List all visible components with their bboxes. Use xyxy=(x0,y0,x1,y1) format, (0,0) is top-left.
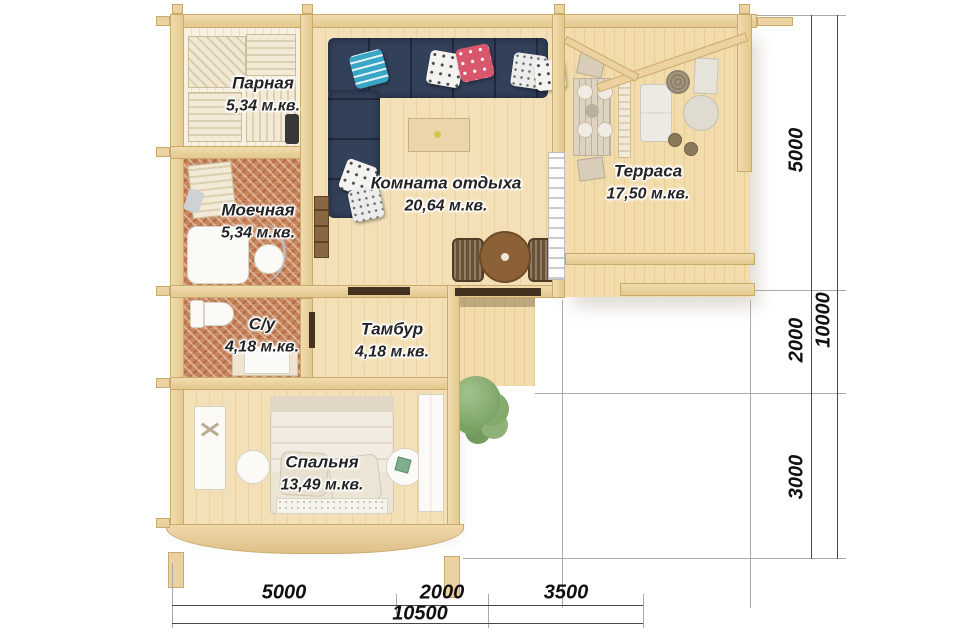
room-area: 5,34 м.кв. xyxy=(226,96,300,118)
porch-deck xyxy=(455,298,535,386)
round-table-center xyxy=(501,253,509,261)
dresser xyxy=(194,406,226,490)
room-name: Терраса xyxy=(607,161,690,184)
ext-line-right-bottom xyxy=(463,558,846,559)
wall-left-rooms-komnata xyxy=(300,14,313,298)
terrace-sofa xyxy=(640,84,672,142)
log-end-top-4 xyxy=(739,4,750,14)
bed-bench xyxy=(276,498,388,514)
table-bowl xyxy=(585,104,599,118)
ext-line-right-top xyxy=(757,15,846,16)
room-label-su: С/у 4,18 м.кв. xyxy=(225,314,299,359)
log-end-top-2 xyxy=(302,4,313,14)
dim-right-total-10000: 10000 xyxy=(813,292,836,348)
room-area: 4,18 м.кв. xyxy=(355,342,429,364)
ext-line-right-5000 xyxy=(755,290,846,291)
terrace-round-table xyxy=(683,95,719,131)
wall-top xyxy=(170,14,757,28)
room-label-komnata: Комната отдыха 20,64 м.кв. xyxy=(371,173,522,218)
wall-parnaya-moechnaya xyxy=(170,146,313,159)
room-name: Комната отдыха xyxy=(371,173,522,196)
wall-top-beam-end xyxy=(757,17,793,26)
dim-right-2000: 2000 xyxy=(786,318,809,363)
lintel-tambur xyxy=(348,287,410,295)
bay-post-left xyxy=(168,552,184,588)
plate-3 xyxy=(577,122,593,138)
wall-right-main xyxy=(447,285,460,530)
dim-bottom-3500: 3500 xyxy=(544,582,589,605)
ext-line-bottom-terrasa-edge xyxy=(750,300,751,608)
porch-step-shadow xyxy=(455,298,535,307)
terrace-railing-bottom xyxy=(620,283,755,296)
dim-line-right-outer xyxy=(837,15,838,559)
dim-bottom-2000: 2000 xyxy=(420,582,465,605)
room-area: 17,50 м.кв. xyxy=(607,184,690,206)
dim-right-3000: 3000 xyxy=(786,455,809,500)
wall-left xyxy=(170,14,184,530)
plate-1 xyxy=(577,84,593,100)
log-end-top-3 xyxy=(554,4,565,14)
room-label-tambur: Тамбур 4,18 м.кв. xyxy=(355,319,429,364)
sauna-heater xyxy=(285,114,299,144)
wall-bay-curved xyxy=(166,524,464,554)
log-end-left-5 xyxy=(156,518,170,528)
wall-spalnya-top xyxy=(170,377,460,390)
dim-bottom-5000: 5000 xyxy=(262,582,307,605)
toilet-tank xyxy=(190,300,204,328)
room-area: 4,18 м.кв. xyxy=(225,337,299,359)
dim-line-right-inner xyxy=(811,15,812,559)
room-area: 13,49 м.кв. xyxy=(281,475,364,497)
terrace-armchair xyxy=(693,57,719,94)
bed-headboard xyxy=(270,396,394,412)
room-label-spalnya: Спальня 13,49 м.кв. xyxy=(281,452,364,497)
room-name: Парная xyxy=(226,73,300,96)
room-area: 20,64 м.кв. xyxy=(371,196,522,218)
pouf-basket-2 xyxy=(684,142,698,156)
door-komnata-terrasa xyxy=(548,152,565,280)
room-name: С/у xyxy=(225,314,299,337)
room-name: Тамбур xyxy=(355,319,429,342)
ext-line-bottom-komnata-edge xyxy=(562,300,563,608)
room-name: Спальня xyxy=(281,452,364,475)
log-end-left-2 xyxy=(156,147,170,157)
ext-line-right-2000 xyxy=(535,393,846,394)
pouf-basket-1 xyxy=(668,133,682,147)
room-label-moechnaya: Моечная 5,34 м.кв. xyxy=(221,200,295,245)
room-label-parnaya: Парная 5,34 м.кв. xyxy=(226,73,300,118)
terrace-bench xyxy=(618,80,631,158)
floor-plan-scene: 5000 2000 3000 10000 5000 2000 3500 1050… xyxy=(0,0,960,640)
room-area: 5,34 м.кв. xyxy=(221,223,295,245)
log-end-left-4 xyxy=(156,378,170,388)
dim-right-5000: 5000 xyxy=(786,128,809,173)
wardrobe xyxy=(418,394,444,512)
wicker-chair xyxy=(666,70,690,94)
log-end-left-3 xyxy=(156,286,170,296)
coffee-table-decor xyxy=(434,131,441,138)
wash-basin xyxy=(254,244,284,274)
window-tambur-left xyxy=(309,312,315,348)
window-komnata-left-wall xyxy=(314,196,329,258)
log-end-left-1 xyxy=(156,16,170,26)
ext-line-bottom-left xyxy=(172,563,173,628)
terrace-beam-mid xyxy=(565,253,755,265)
room-name: Моечная xyxy=(221,200,295,223)
terrace-chair-bottom xyxy=(577,156,606,181)
tick-bottom-right xyxy=(643,594,644,628)
pillow-red xyxy=(455,43,495,83)
pouf-left xyxy=(236,450,270,484)
plate-4 xyxy=(597,122,613,138)
threshold-entry-door xyxy=(455,288,541,296)
dim-bottom-total-10500: 10500 xyxy=(392,603,448,626)
log-end-top-1 xyxy=(172,4,183,14)
room-label-terrasa: Терраса 17,50 м.кв. xyxy=(607,161,690,206)
sauna-bench-top xyxy=(246,34,296,76)
